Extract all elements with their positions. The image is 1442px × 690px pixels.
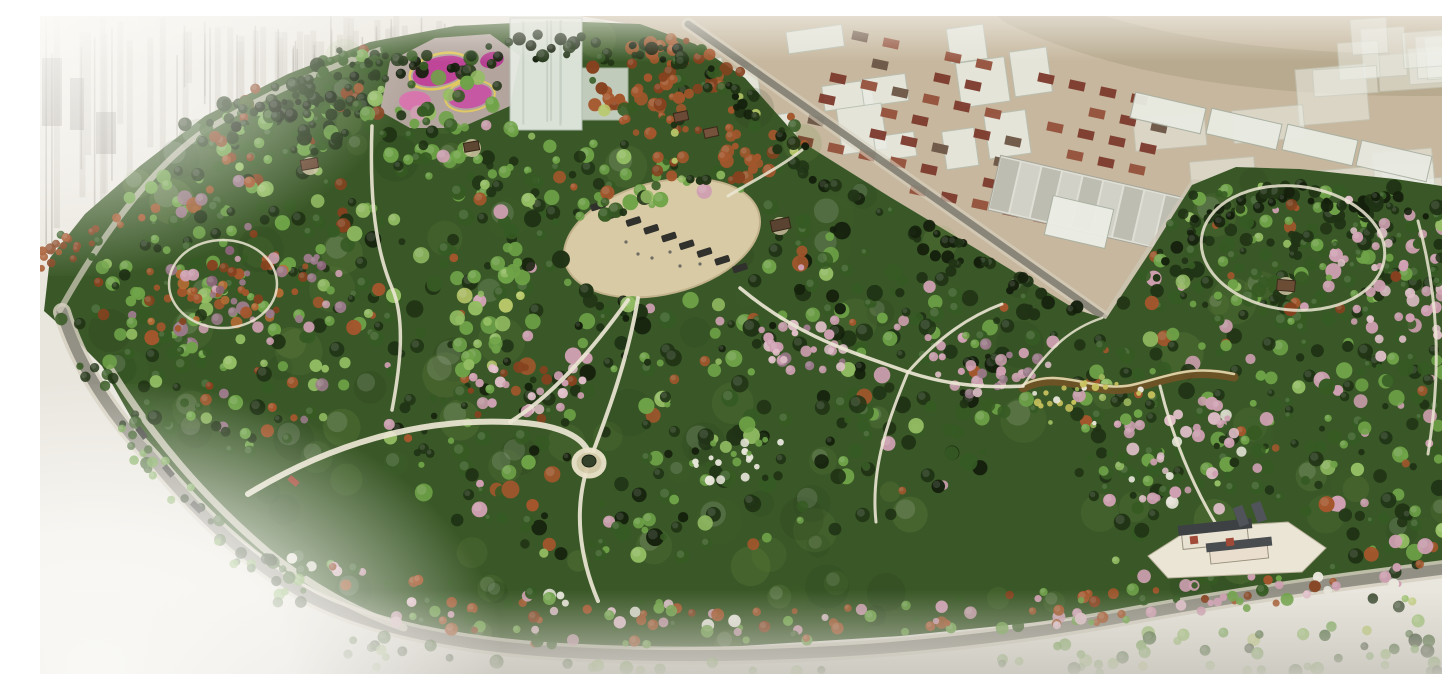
pavilion-roof <box>582 455 596 467</box>
scene-svg <box>40 16 1442 674</box>
park-aerial-rendering <box>40 16 1442 674</box>
